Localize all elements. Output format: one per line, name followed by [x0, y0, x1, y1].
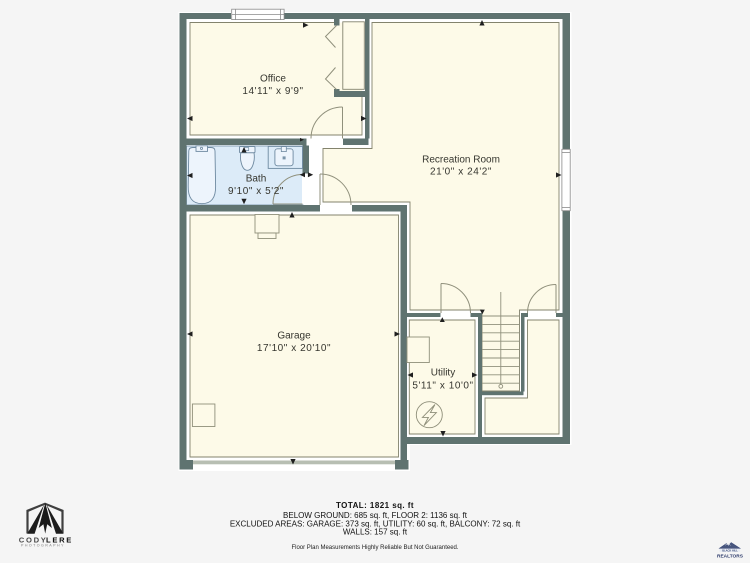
svg-text:Recreation Room: Recreation Room	[422, 155, 500, 166]
svg-text:REALTORS: REALTORS	[717, 553, 744, 559]
svg-text:TOTAL: 1821 sq. ft: TOTAL: 1821 sq. ft	[336, 501, 414, 510]
svg-text:21'0" x 24'2": 21'0" x 24'2"	[430, 167, 492, 178]
svg-text:Floor Plan Measurements Highly: Floor Plan Measurements Highly Reliable …	[291, 545, 458, 551]
svg-text:Bath: Bath	[246, 174, 267, 185]
svg-text:Utility: Utility	[431, 368, 455, 379]
svg-text:5'11" x 10'0": 5'11" x 10'0"	[412, 381, 473, 392]
svg-text:Garage: Garage	[277, 331, 311, 342]
svg-text:17'10" x 20'10": 17'10" x 20'10"	[257, 343, 331, 354]
svg-text:14'11" x 9'9": 14'11" x 9'9"	[242, 86, 303, 97]
svg-text:9'10" x 5'2": 9'10" x 5'2"	[228, 186, 284, 197]
svg-text:Office: Office	[260, 74, 286, 85]
svg-text:WALLS: 157 sq. ft: WALLS: 157 sq. ft	[343, 528, 408, 537]
svg-text:BLACK HILL: BLACK HILL	[722, 548, 738, 552]
svg-text:PHOTOGRAPHY: PHOTOGRAPHY	[21, 544, 65, 548]
